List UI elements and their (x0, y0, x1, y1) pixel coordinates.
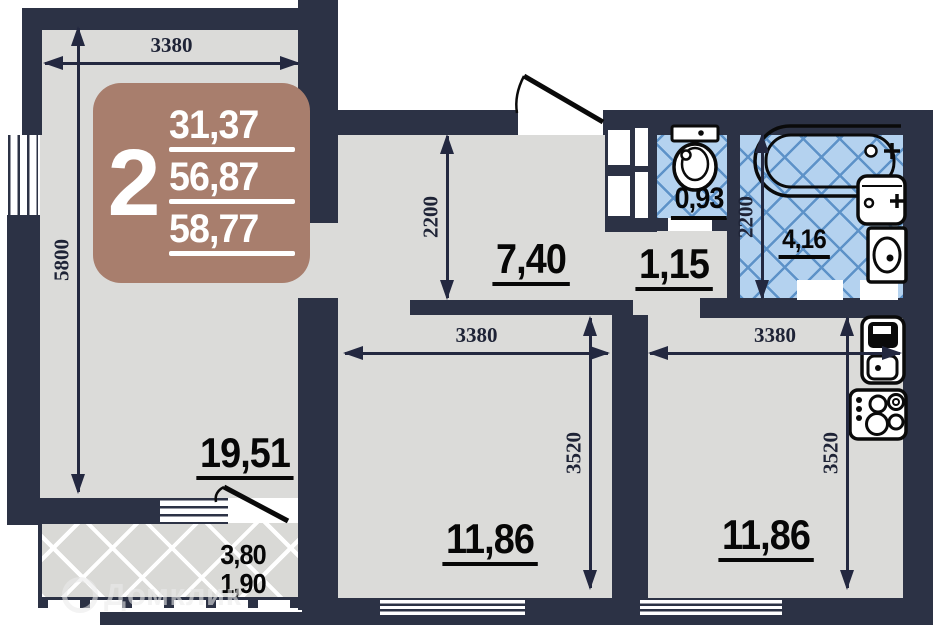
stove (850, 390, 906, 439)
badge-living-area: 31,37 (169, 105, 287, 145)
bathroom-sink (858, 176, 905, 224)
watermark: Домклик (62, 577, 242, 613)
room-label-corridor: 1,15 (631, 243, 717, 291)
floor-plan: 3380 5800 2200 2200 3380 3520 3380 3520 … (0, 0, 934, 640)
room-label-hallway: 7,40 (488, 238, 574, 286)
entry-door (516, 76, 603, 122)
badge-area-mid: 56,87 (169, 157, 287, 197)
apartment-badge: 2 31,37 56,87 58,77 (93, 83, 310, 283)
balcony-door (216, 487, 288, 521)
room-label-bathroom: 4,16 (776, 226, 833, 259)
room-count: 2 (108, 143, 161, 224)
watermark-logo-icon (62, 577, 98, 613)
room-label-living: 19,51 (191, 432, 299, 480)
washing-machine (868, 228, 906, 282)
dim-label: 3380 (456, 323, 498, 348)
room-label-wc: 0,93 (668, 184, 730, 220)
dim-label: 2200 (419, 196, 444, 238)
dim-label: 5800 (50, 239, 75, 281)
room-label-bedroom: 11,86 (437, 518, 543, 566)
dim-label: 3520 (562, 432, 587, 474)
toilet (672, 126, 718, 190)
room-label-kitchen: 11,86 (713, 514, 819, 562)
watermark-text: Домклик (104, 577, 242, 613)
dim-label: 2200 (734, 196, 759, 238)
dim-label: 3520 (819, 432, 844, 474)
dim-label: 3380 (754, 323, 796, 348)
badge-area-total: 58,77 (169, 209, 287, 249)
dim-label: 3380 (151, 33, 193, 58)
